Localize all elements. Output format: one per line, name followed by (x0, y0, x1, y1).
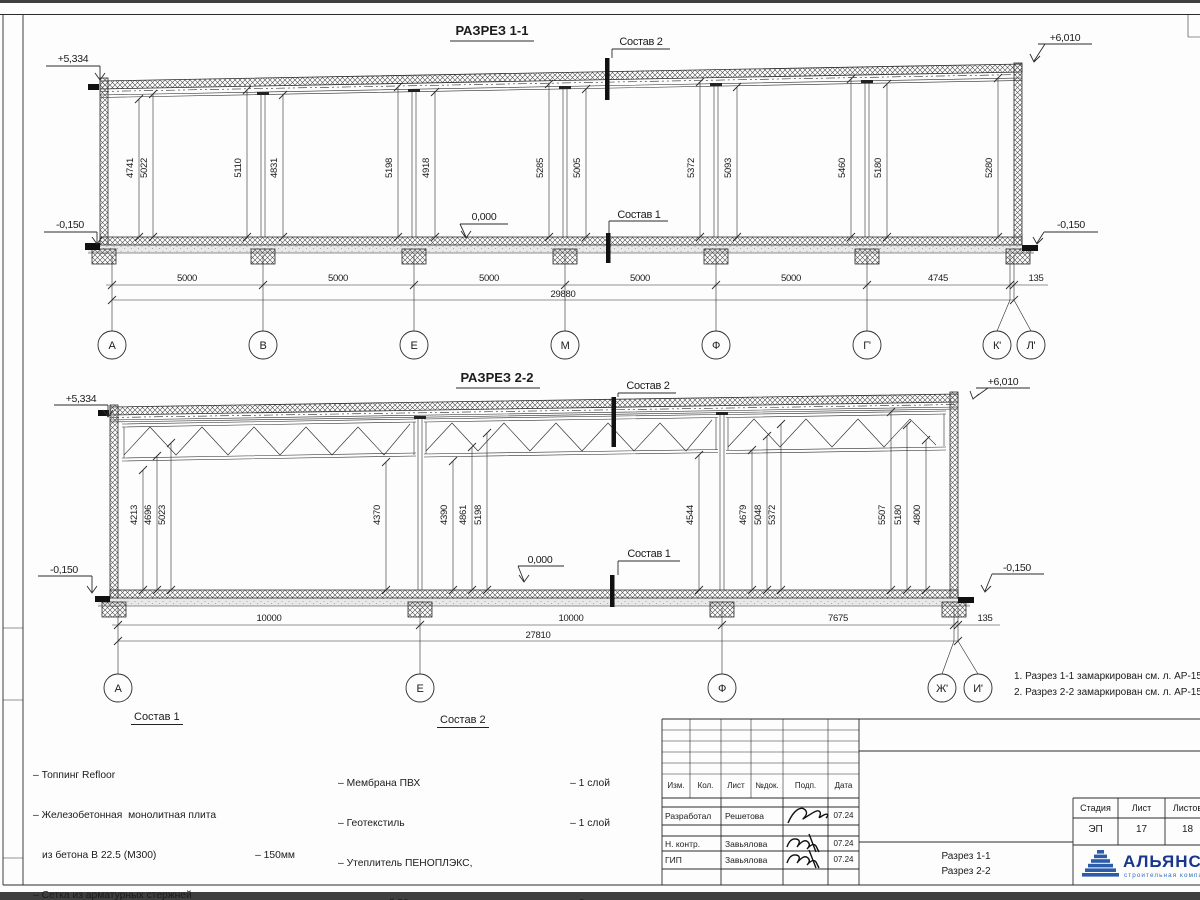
tb-col-list: Лист (721, 781, 751, 790)
sostav2-label: Состав 2 (619, 36, 662, 48)
dim-label: 5198 (384, 158, 395, 178)
sostav1-label: Состав 1 (627, 548, 670, 560)
axis-label: Г' (863, 340, 871, 352)
dim-label: 5180 (893, 505, 904, 525)
elevation-label: +6,010 (1050, 32, 1081, 44)
signatures (787, 808, 828, 868)
dim-label: 10000 (257, 613, 282, 624)
section2-title: РАЗРЕЗ 2-2 (461, 370, 534, 385)
section-1-1: РАЗРЕЗ 1-1 (44, 23, 1098, 359)
dim-label: 5000 (328, 273, 348, 284)
dim-label: 4918 (421, 158, 432, 178)
elevation-label: +5,334 (66, 393, 97, 405)
dim-label: 5285 (535, 158, 546, 178)
elevation-marks-1: +5,334 +6,010 -0,150 -0,150 0,000 (44, 32, 1098, 244)
dim-label: 5000 (479, 273, 499, 284)
logo-subtitle: строительная компания (1124, 872, 1200, 879)
dim-label: 5023 (157, 505, 168, 525)
dim-label: 5000 (630, 273, 650, 284)
tb-col-kol: Кол. (690, 781, 721, 790)
material-item: – Топпинг Refloor (33, 769, 115, 782)
dim-label: 4741 (125, 158, 136, 178)
columns (418, 415, 724, 590)
section-2-2: РАЗРЕЗ 2-2 (38, 370, 1044, 702)
dim-label: 5507 (877, 505, 888, 525)
dim-label: 5022 (139, 158, 150, 178)
dim-label: 5005 (572, 158, 583, 178)
doc-title-line: Разрез 2-2 (859, 864, 1073, 879)
columns (261, 83, 869, 237)
dim-label: 5180 (873, 158, 884, 178)
tb-doc-title: Разрез 1-1 Разрез 2-2 (859, 849, 1073, 879)
dim-label: 4370 (372, 505, 383, 525)
sostav-leaders-1: Состав 2 Состав 1 (605, 36, 670, 263)
dim-label: 5280 (984, 158, 995, 178)
dim-label: 4679 (738, 505, 749, 525)
axis-label: Ф (712, 340, 720, 352)
roof-insulation (110, 394, 958, 415)
wall-left (110, 405, 118, 606)
sostav2-label: Состав 2 (626, 380, 669, 392)
tb-name-2: Завьялова (725, 839, 781, 849)
material-item: – Мембрана ПВХ (338, 777, 420, 790)
signature-1 (788, 808, 828, 823)
elevation-label: -0,150 (50, 564, 78, 576)
axis-label: Е (410, 340, 417, 352)
tb-stage-value: ЭП (1073, 824, 1118, 835)
elevation-label: -0,150 (1003, 562, 1031, 574)
axis-label: А (108, 340, 116, 352)
ledge-right (1022, 245, 1038, 251)
elevation-label: -0,150 (56, 219, 84, 231)
dim-label: 5000 (781, 273, 801, 284)
axis-label: И' (973, 683, 983, 695)
wall-right (1014, 63, 1022, 253)
floor-slab (100, 237, 1022, 245)
dim-label: 4544 (685, 505, 696, 525)
sostav1-label: Состав 1 (617, 209, 660, 221)
dim-label: 135 (978, 613, 993, 624)
tb-col-podp: Подп. (783, 781, 828, 790)
drawing-sheet: РАЗРЕЗ 1-1 (0, 0, 1200, 900)
parapet-hook (88, 84, 99, 90)
dim-label: 10000 (559, 613, 584, 624)
axis-markers-2: А Е Ф Ж' И' (104, 674, 992, 702)
section1-title: РАЗРЕЗ 1-1 (456, 23, 529, 38)
dim-total: 29880 (551, 289, 576, 300)
tb-sheet-label: Лист (1118, 803, 1165, 813)
axis-label: В (259, 340, 266, 352)
tb-name-1: Решетова (725, 811, 781, 821)
note-line: 1. Разрез 1-1 замаркирован см. л. АР-15 (1014, 669, 1200, 685)
dim-label: 4696 (143, 505, 154, 525)
elevation-label: +5,334 (58, 53, 89, 65)
tb-date-2: 07.24 (828, 839, 859, 848)
dim-label: 4861 (458, 505, 469, 525)
notes: 1. Разрез 1-1 замаркирован см. л. АР-15 … (1014, 669, 1200, 700)
floor-slab (110, 590, 958, 598)
axis-label: М (561, 340, 570, 352)
tb-stage-label: Стадия (1073, 803, 1118, 813)
material-item: – Сетка из арматурных стержней (33, 889, 192, 900)
axis-label: К' (993, 340, 1001, 352)
material-item: – Геотекстиль (338, 817, 405, 830)
wall-right (950, 392, 958, 606)
dim-label: 5000 (177, 273, 197, 284)
tb-role-3: ГИП (665, 855, 719, 865)
axis-label: А (114, 683, 122, 695)
dim-label: 5198 (473, 505, 484, 525)
ledge-left (95, 596, 110, 602)
doc-title-line: Разрез 1-1 (859, 849, 1073, 864)
tb-sheets-value: 18 (1165, 824, 1200, 835)
sostav2-list: – Мембрана ПВХ– 1 слой – Геотекстиль– 1 … (338, 750, 610, 900)
tb-role-1: Разработал (665, 811, 719, 821)
elevation-label: 0,000 (472, 211, 497, 223)
axis-label: Е (416, 683, 423, 695)
axis-label: Л' (1027, 340, 1036, 352)
dim-label: 5048 (753, 505, 764, 525)
dim-label: 4831 (269, 158, 280, 178)
ledge-left (85, 243, 100, 250)
note-line: 2. Разрез 2-2 замаркирован см. л. АР-15 (1014, 685, 1200, 701)
signature-2 (787, 834, 819, 852)
tb-role-2: Н. контр. (665, 839, 719, 849)
dim-label: 7675 (828, 613, 848, 624)
trusses (122, 411, 946, 461)
elevation-label: +6,010 (988, 376, 1019, 388)
wall-left (100, 78, 108, 253)
ledge-right (958, 597, 974, 603)
tb-sheets-label: Листов (1165, 803, 1200, 813)
dim-label: 4390 (439, 505, 450, 525)
dim-label: 5460 (837, 158, 848, 178)
axis-label: Ф (718, 683, 726, 695)
logo-pyramid-icon (1082, 850, 1119, 877)
dim-total: 27810 (526, 630, 551, 641)
elevation-label: 0,000 (528, 554, 553, 566)
elevation-label: -0,150 (1057, 219, 1085, 231)
tb-date-3: 07.24 (828, 855, 859, 864)
dim-label: 5372 (686, 158, 697, 178)
tb-col-ndok: №док. (751, 781, 783, 790)
tb-name-3: Завьялова (725, 855, 781, 865)
tb-col-data: Дата (828, 781, 859, 790)
sostav1-list: – Топпинг Refloor – Железобетонная монол… (33, 742, 295, 900)
dim-label: 4800 (912, 505, 923, 525)
material-item: – Железобетонная монолитная плита (33, 809, 216, 822)
sostav2-list-header: Состав 2 (437, 714, 489, 728)
tb-col-izm: Изм. (662, 781, 690, 790)
roof-insulation (100, 64, 1022, 89)
material-item: – Утеплитель ПЕНОПЛЭКС, (338, 857, 472, 870)
logo-name: АЛЬЯНС (1123, 852, 1200, 872)
dim-label: 5093 (723, 158, 734, 178)
sand-layer (98, 598, 970, 606)
tb-sheet-value: 17 (1118, 824, 1165, 835)
dim-label: 135 (1029, 273, 1044, 284)
tb-date-1: 07.24 (828, 811, 859, 820)
material-item: из бетона В 22.5 (М300) (33, 849, 156, 862)
dim-label: 4745 (928, 273, 948, 284)
dim-label: 5372 (767, 505, 778, 525)
dim-label: 4213 (129, 505, 140, 525)
signature-3 (787, 850, 819, 868)
axis-markers-1: А В Е М Ф Г' К' Л' (98, 331, 1045, 359)
axis-label: Ж' (936, 683, 948, 695)
sostav1-list-header: Состав 1 (131, 711, 183, 725)
dim-label: 5110 (233, 158, 244, 177)
